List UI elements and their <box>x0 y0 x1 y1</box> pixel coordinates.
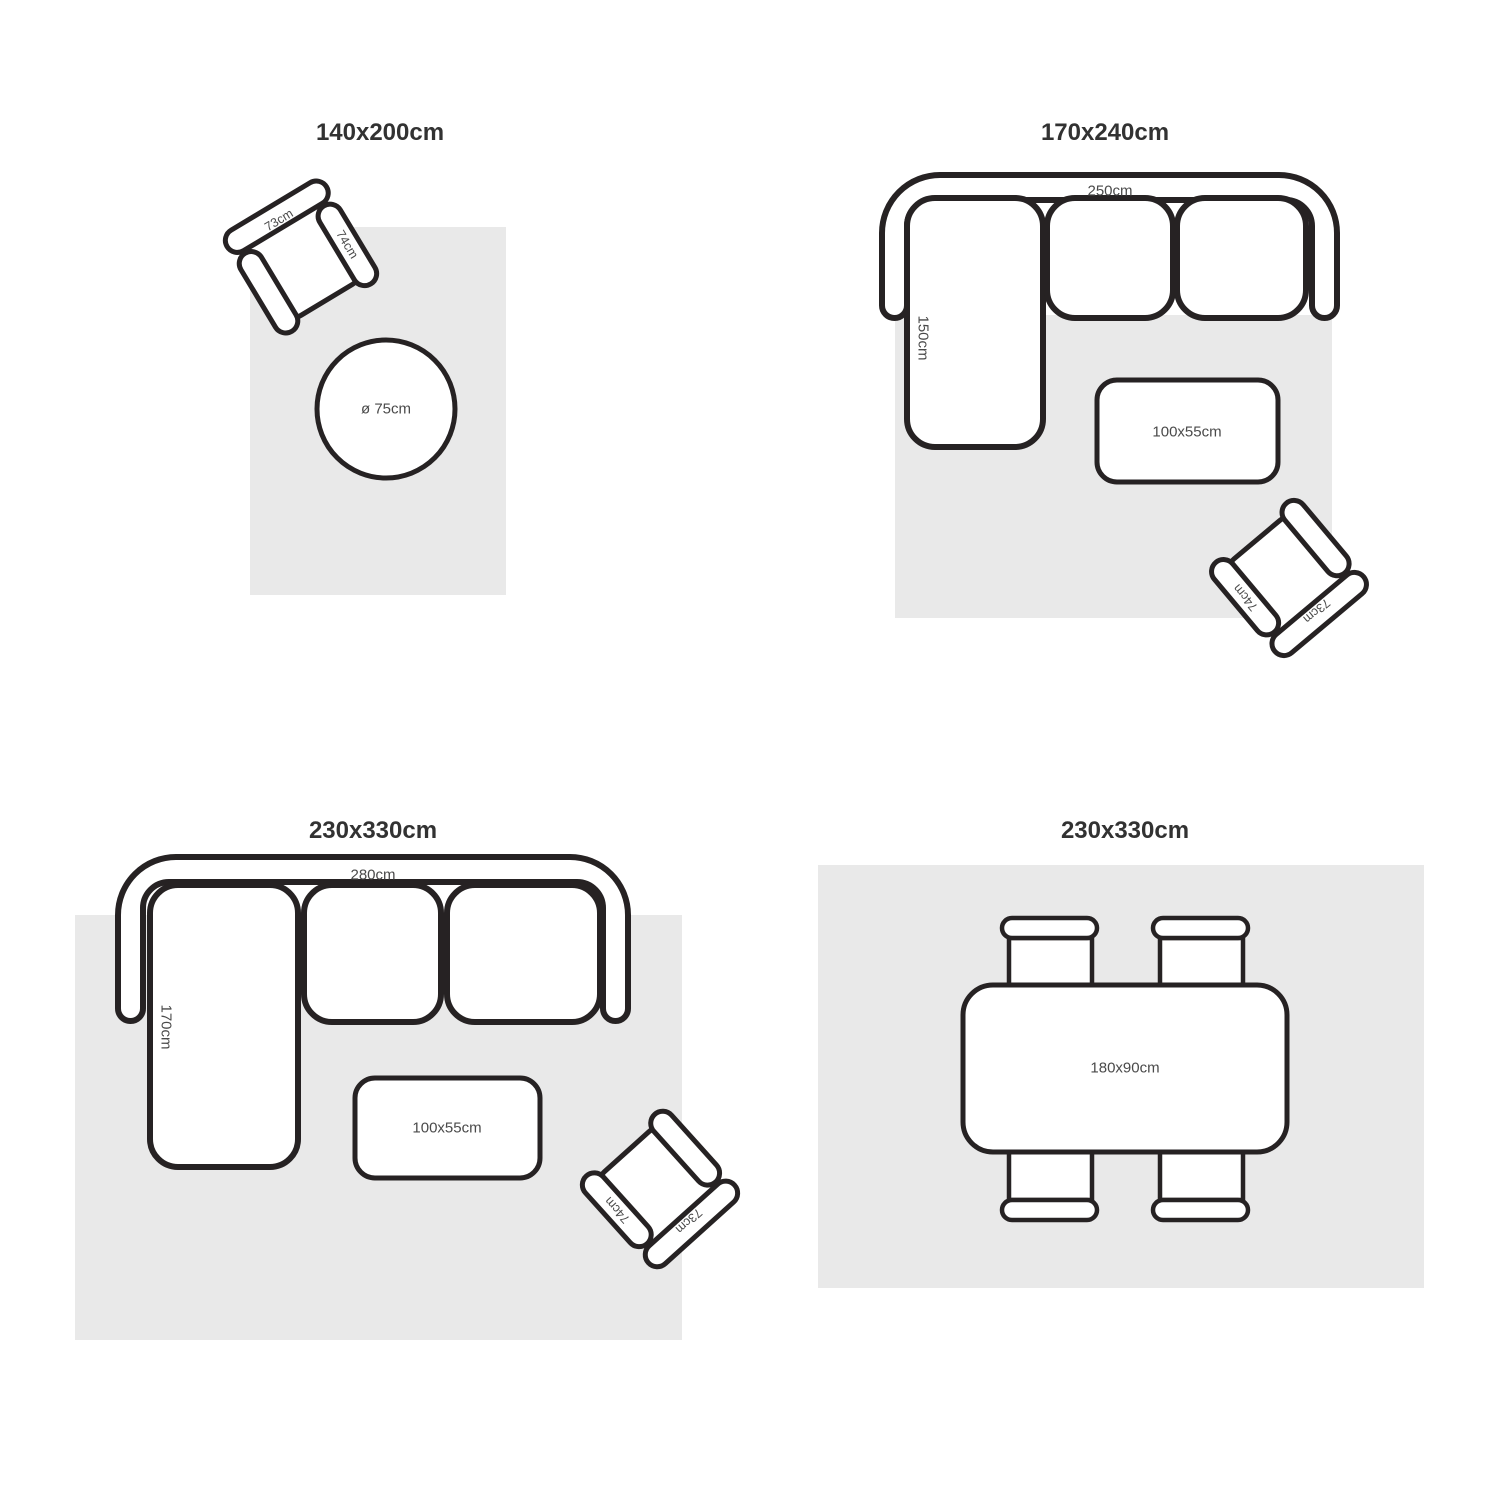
panel-title: 230x330cm <box>309 817 437 844</box>
rug-size-guide-canvas: 140x200cm 73cm 74cm ø 75cm 170x240cm 250… <box>0 0 1500 1500</box>
panel-230x330-dining: 230x330cm 180x90cm <box>818 817 1424 1288</box>
dining-chair-seat <box>1009 938 1092 990</box>
coffee-table-label: 100x55cm <box>412 1120 481 1137</box>
coffee-table-label: 100x55cm <box>1152 424 1221 441</box>
sofa-seat-cushion <box>1047 198 1173 318</box>
rug-size-guide: 140x200cm 73cm 74cm ø 75cm 170x240cm 250… <box>0 0 1500 1500</box>
dining-chair-back <box>1002 1200 1097 1220</box>
sofa-seat-cushion <box>304 885 441 1022</box>
sofa-seat-cushion <box>447 885 600 1022</box>
sofa-width-label: 250cm <box>1087 183 1132 200</box>
dining-chair-icon <box>1002 1148 1097 1220</box>
dining-chair-seat <box>1160 1148 1243 1200</box>
panel-140x200: 140x200cm 73cm 74cm ø 75cm <box>221 119 506 595</box>
dining-chair-icon <box>1153 1148 1248 1220</box>
sofa-seat-cushion <box>1177 198 1306 318</box>
dining-chair-seat <box>1009 1148 1092 1200</box>
dining-chair-back <box>1153 1200 1248 1220</box>
panel-title: 140x200cm <box>316 119 444 146</box>
panel-230x330-sofa: 230x330cm 280cm 170cm 100x55cm 73cm 74cm <box>75 817 743 1340</box>
dining-chair-icon <box>1002 918 1097 990</box>
dining-chair-icon <box>1153 918 1248 990</box>
panel-170x240: 170x240cm 250cm 150cm 100x55cm 73cm 74cm <box>882 119 1371 660</box>
dining-chair-back <box>1002 918 1097 938</box>
sofa-depth-label: 150cm <box>915 315 932 360</box>
dining-chair-back <box>1153 918 1248 938</box>
sofa-depth-label: 170cm <box>158 1004 175 1049</box>
panel-title: 230x330cm <box>1061 817 1189 844</box>
dining-table-label: 180x90cm <box>1090 1060 1159 1077</box>
dining-chair-seat <box>1160 938 1243 990</box>
sofa-width-label: 280cm <box>350 867 395 884</box>
round-table-label: ø 75cm <box>361 401 411 418</box>
panel-title: 170x240cm <box>1041 119 1169 146</box>
